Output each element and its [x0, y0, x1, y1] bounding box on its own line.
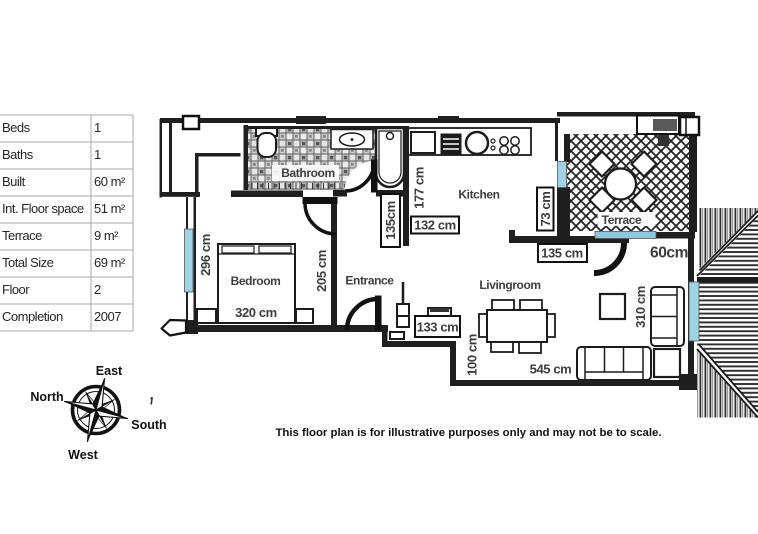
svg-text:60cm: 60cm: [650, 245, 688, 262]
svg-text:Built: Built: [2, 174, 26, 189]
svg-text:Beds: Beds: [2, 120, 31, 135]
svg-text:135 cm: 135 cm: [541, 246, 583, 261]
svg-text:Terrace: Terrace: [602, 213, 642, 227]
svg-text:Terrace: Terrace: [2, 228, 42, 243]
svg-text:Kitchen: Kitchen: [458, 188, 499, 202]
svg-text:This floor plan is for illustr: This floor plan is for illustrative purp…: [275, 427, 661, 439]
svg-text:Baths: Baths: [2, 147, 34, 162]
svg-text:Floor: Floor: [2, 282, 30, 297]
svg-text:205 cm: 205 cm: [314, 250, 329, 292]
svg-text:9 m²: 9 m²: [94, 228, 119, 243]
svg-text:296 cm: 296 cm: [198, 234, 213, 276]
svg-text:North: North: [30, 390, 63, 404]
svg-text:West: West: [68, 448, 98, 462]
svg-text:Bedroom: Bedroom: [231, 274, 281, 288]
svg-text:1: 1: [94, 120, 101, 135]
svg-text:Entrance: Entrance: [345, 274, 394, 288]
svg-text:Int. Floor space: Int. Floor space: [2, 201, 84, 216]
svg-text:132 cm: 132 cm: [414, 218, 456, 233]
svg-text:310 cm: 310 cm: [633, 286, 648, 328]
svg-text:East: East: [96, 364, 123, 378]
svg-text:69 m²: 69 m²: [94, 255, 126, 270]
svg-text:Completion: Completion: [2, 309, 63, 324]
svg-text:135cm: 135cm: [383, 201, 398, 239]
svg-text:2007: 2007: [94, 309, 121, 324]
svg-text:Total Size: Total Size: [2, 255, 54, 270]
svg-text:320 cm: 320 cm: [235, 305, 277, 320]
svg-text:545 cm: 545 cm: [530, 362, 572, 377]
svg-text:2: 2: [94, 282, 101, 297]
svg-text:133 cm: 133 cm: [417, 320, 459, 335]
svg-text:100 cm: 100 cm: [465, 334, 480, 376]
svg-text:1: 1: [94, 147, 101, 162]
svg-text:South: South: [131, 418, 166, 432]
svg-text:Bathroom: Bathroom: [281, 166, 334, 180]
svg-text:51 m²: 51 m²: [94, 201, 126, 216]
svg-text:177 cm: 177 cm: [412, 167, 427, 209]
svg-text:Livingroom: Livingroom: [479, 278, 540, 292]
svg-text:60 m²: 60 m²: [94, 174, 126, 189]
svg-text:73 cm: 73 cm: [538, 192, 553, 227]
